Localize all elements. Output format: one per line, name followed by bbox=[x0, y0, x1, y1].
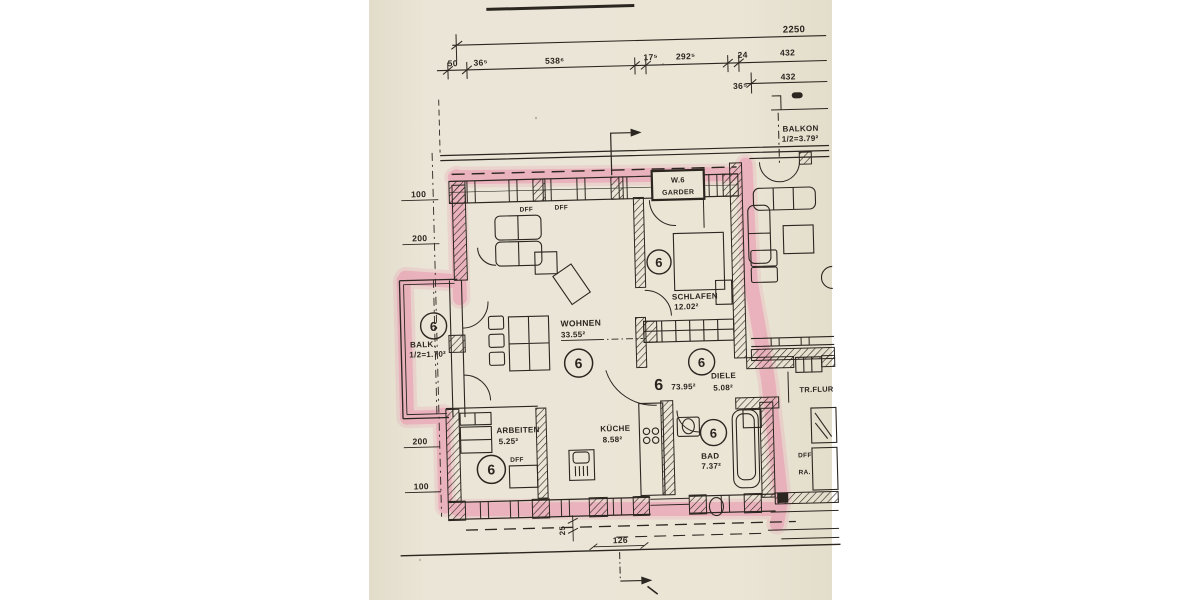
unit-box-line1: W.6 bbox=[671, 175, 685, 184]
area-wohnen: 33.55² bbox=[561, 330, 586, 340]
unit-number-diele: 6 bbox=[698, 355, 706, 370]
dim-bottom-offset: 25 bbox=[558, 525, 567, 535]
label-arbeiten: ARBEITEN bbox=[496, 425, 540, 435]
label-schlafen: SCHLAFEN bbox=[672, 291, 718, 301]
area-bad: 7.37² bbox=[701, 461, 721, 471]
unit-number-wohnen: 6 bbox=[574, 355, 583, 371]
dim-seg1: 50 bbox=[448, 58, 458, 68]
area-arbeiten: 5.25² bbox=[499, 437, 519, 447]
dim-seg5: 292⁵ bbox=[676, 51, 696, 62]
dim-left-3: 200 bbox=[412, 436, 427, 446]
label-kueche: KÜCHE bbox=[600, 424, 631, 434]
floorplan-drawing: 2250 50 36⁵ 538⁶ 17⁵ 292⁵ 24 432 36⁵ 432 bbox=[0, 0, 1200, 600]
label-ra: RA. bbox=[798, 469, 810, 476]
scanned-floorplan-photo: { "scan": { "unit_number": "6", "unit_to… bbox=[0, 0, 1200, 600]
dim-seg7: 432 bbox=[780, 47, 795, 57]
area-kueche: 8.58² bbox=[603, 435, 623, 445]
label-stair-hall: TR.FLUR bbox=[799, 384, 834, 394]
label-diele: DIELE bbox=[711, 371, 737, 381]
dim-seg2: 36⁵ bbox=[473, 57, 488, 67]
dim-row2-a: 36⁵ bbox=[733, 81, 748, 91]
area-diele: 5.08² bbox=[713, 383, 733, 393]
dim-left-1: 100 bbox=[411, 189, 426, 199]
label-balkon-right: BALKON bbox=[782, 124, 818, 134]
dim-seg6: 24 bbox=[737, 50, 747, 60]
dim-seg4: 17⁵ bbox=[643, 52, 658, 62]
unit-number-schlafen: 6 bbox=[655, 255, 663, 270]
unit-box-line2: GARDER bbox=[662, 189, 694, 197]
label-dff-2: DFF bbox=[554, 204, 568, 211]
unit-number-bad: 6 bbox=[710, 426, 718, 441]
label-dff-4: DFF bbox=[798, 452, 812, 459]
label-balk-left: BALK. bbox=[410, 340, 436, 350]
window-symbol bbox=[449, 335, 465, 352]
dim-overall: 2250 bbox=[783, 24, 806, 36]
label-dff-1: DFF bbox=[520, 206, 534, 213]
area-balkon-right: 1/2=3.79² bbox=[782, 134, 819, 144]
dim-bottom-width: 126 bbox=[613, 535, 628, 545]
dim-left-4: 100 bbox=[414, 481, 429, 491]
dim-seg3: 538⁶ bbox=[545, 55, 565, 66]
dim-left-2: 200 bbox=[412, 233, 427, 243]
door-handle-symbol bbox=[792, 92, 803, 98]
label-dff-3: DFF bbox=[510, 457, 524, 464]
label-bad: BAD bbox=[701, 451, 719, 460]
dim-row2-b: 432 bbox=[781, 71, 796, 81]
area-schlafen: 12.02² bbox=[674, 302, 699, 312]
label-wohnen: WOHNEN bbox=[560, 318, 601, 329]
unit-number-large: 6 bbox=[654, 377, 664, 394]
window-symbol bbox=[799, 152, 811, 164]
unit-total-area: 73.95² bbox=[671, 382, 696, 392]
area-balk-left: 1/2=1.70² bbox=[409, 350, 446, 360]
unit-number-arbeiten: 6 bbox=[487, 461, 496, 477]
